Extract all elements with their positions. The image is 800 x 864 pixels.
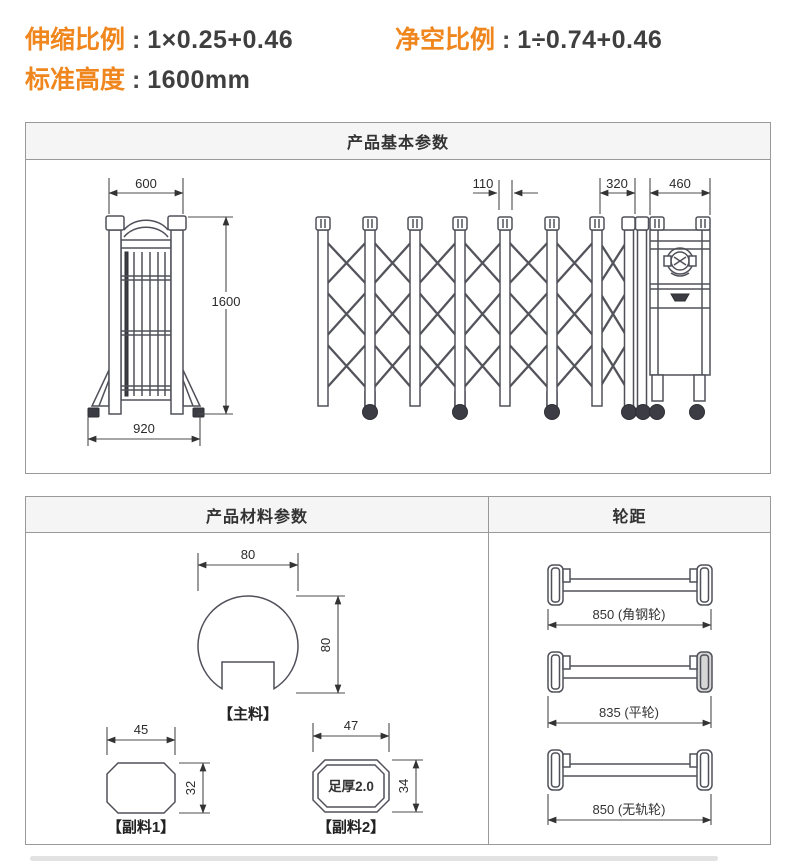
gate-expanded-view: 110 320 — [316, 176, 651, 420]
spec-standard-height: 标准高度 : 1600mm — [25, 64, 250, 96]
spec-clearance-ratio-label: 净空比例 — [395, 26, 495, 54]
axle-flat-wheel: 835 (平轮) — [548, 652, 712, 728]
dim-front-bottom-width: 920 — [133, 421, 155, 436]
material-parameters-title: 产品材料参数 — [26, 497, 489, 533]
dim-front-top-width: 600 — [135, 176, 157, 191]
dim-sub1-height: 32 — [183, 781, 198, 795]
sub2-thickness-note: 足厚2.0 — [328, 779, 374, 794]
spec-clearance-ratio-value: 1÷0.74+0.46 — [517, 26, 662, 54]
dim-front-height: 1600 — [212, 294, 241, 309]
spec-standard-height-label: 标准高度 — [25, 66, 125, 94]
spec-clearance-ratio: 净空比例 : 1÷0.74+0.46 — [395, 24, 662, 56]
wheel-track-drawing: 850 (角钢轮) 835 (平轮) — [489, 533, 769, 843]
gate-front-view: 600 1600 — [88, 176, 244, 446]
wheel-track-dim-1: 850 (角钢轮) — [593, 607, 666, 622]
spec-colon: : — [125, 26, 147, 54]
material-and-wheel-panel: 产品材料参数 轮距 80 80 【主料】 — [25, 496, 771, 845]
sub-profile-1-caption: 【副料1】 — [107, 818, 175, 836]
basic-parameters-drawing: 600 1600 — [26, 160, 770, 473]
dim-main-height: 80 — [318, 638, 333, 652]
bottom-divider — [30, 856, 718, 861]
sub-profile-2-caption: 【副料2】 — [317, 818, 385, 836]
wheel-track-dim-3: 850 (无轨轮) — [593, 802, 666, 817]
basic-parameters-title: 产品基本参数 — [26, 123, 770, 160]
gate-posts — [316, 217, 649, 406]
wheel-track-dim-2: 835 (平轮) — [599, 705, 659, 720]
spec-colon: : — [125, 66, 147, 94]
material-profiles-drawing: 80 80 【主料】 45 32 【副料1】 — [26, 533, 488, 843]
wheel-track-cell: 850 (角钢轮) 835 (平轮) — [489, 533, 770, 844]
dim-sub2-width: 47 — [344, 718, 358, 733]
basic-parameters-panel: 产品基本参数 600 — [25, 122, 771, 474]
main-profile-caption: 【主料】 — [218, 705, 278, 723]
material-parameters-cell: 80 80 【主料】 45 32 【副料1】 — [26, 533, 489, 844]
dim-main-width: 80 — [241, 547, 255, 562]
spec-stretch-ratio-value: 1×0.25+0.46 — [147, 26, 293, 54]
main-profile-section: 80 80 【主料】 — [198, 547, 345, 723]
spec-stretch-ratio-label: 伸缩比例 — [25, 26, 125, 54]
gate-motor-head: 460 — [650, 176, 711, 420]
dim-sub1-width: 45 — [134, 722, 148, 737]
spec-standard-height-value: 1600mm — [147, 66, 250, 94]
sub-profile-2-section: 47 足厚2.0 34 【副料2】 — [313, 718, 423, 836]
dim-post-pitch: 110 — [473, 176, 494, 191]
dim-motor-head-width: 460 — [669, 176, 691, 191]
spec-colon: : — [495, 26, 517, 54]
axle-angle-steel-wheel: 850 (角钢轮) — [548, 565, 712, 630]
wheel-track-title: 轮距 — [489, 497, 770, 533]
sub-profile-1-section: 45 32 【副料1】 — [107, 722, 210, 836]
dim-sub2-height: 34 — [396, 779, 411, 793]
axle-trackless-wheel: 850 (无轨轮) — [548, 750, 712, 825]
dim-folded-length: 320 — [606, 176, 628, 191]
spec-stretch-ratio: 伸缩比例 : 1×0.25+0.46 — [25, 24, 293, 56]
